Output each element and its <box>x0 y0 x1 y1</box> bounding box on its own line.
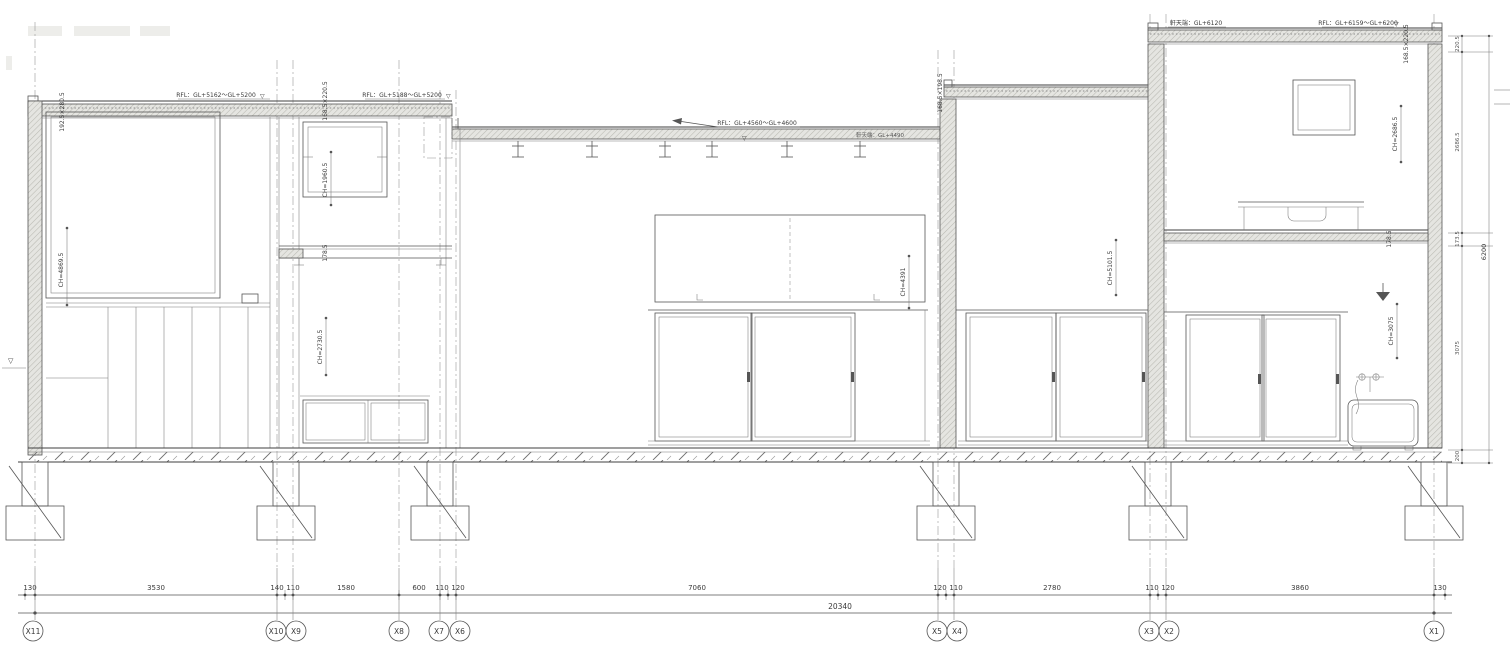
vdim-total-label: 6200 <box>1480 244 1488 261</box>
dim-label: 3860 <box>1291 584 1309 592</box>
bath-faucet-icon <box>1355 374 1384 414</box>
slope-arrow-icon <box>672 118 718 127</box>
grid-bubble-label: X9 <box>291 627 301 636</box>
grid-bubbles: X11 X10 X9 X8 X7 X6 X5 X4 X3 X2 X1 <box>23 568 1444 641</box>
grid-bubble-label: X3 <box>1144 627 1154 636</box>
dim-label: 3530 <box>147 584 165 592</box>
roof-beam-size: 192.5×280.5 <box>59 92 66 132</box>
grid-bubble-label: X10 <box>269 627 284 636</box>
window-b <box>303 122 387 197</box>
beam-size: 178.5 <box>322 244 329 261</box>
level-triangle-icon: ▽ <box>8 357 14 365</box>
low-cabinet <box>300 396 430 443</box>
level-triangle-icon: ▽ <box>446 93 451 100</box>
grid-bubble-label: X2 <box>1164 627 1174 636</box>
vdim-label: 2686.5 <box>1455 132 1461 152</box>
vdim-label: 173.5 <box>1455 231 1461 247</box>
ch-label: CH=2686.5 <box>1392 116 1399 151</box>
ch-label: CH=4869.5 <box>58 252 65 287</box>
ch-label: CH=2730.5 <box>317 329 324 364</box>
sink-basin <box>1288 207 1326 221</box>
dim-label: 120 <box>1161 584 1174 592</box>
room-e <box>1164 80 1418 450</box>
level-triangle-icon: ▽ <box>1394 21 1399 28</box>
sliding-door-d <box>966 313 1146 441</box>
footing <box>1129 462 1187 540</box>
roof-mid-right <box>944 80 1156 99</box>
total-dim-label: 20340 <box>828 602 852 611</box>
door-handle <box>1142 372 1145 382</box>
room-b <box>279 117 452 443</box>
wall-x5x4 <box>940 99 956 448</box>
dim-label: 120 <box>933 584 946 592</box>
ch-label: CH=4391 <box>900 267 907 296</box>
grid-bubble-label: X7 <box>434 627 444 636</box>
vdim-label: 200 <box>1455 450 1461 461</box>
door-handle <box>1052 372 1055 382</box>
footing <box>917 462 975 540</box>
grid-bubble-label: X8 <box>394 627 404 636</box>
door-handle <box>747 372 750 382</box>
door-handle <box>1336 374 1339 384</box>
rfl-label-canopy: RFL：GL+4560～GL+4600 <box>717 120 797 127</box>
dim-label: 600 <box>412 584 425 592</box>
mid-beam <box>279 246 452 265</box>
door-handle <box>1258 374 1261 384</box>
faint-title-marks <box>6 26 170 70</box>
vdim-label: 3075 <box>1455 341 1461 355</box>
vdim-label: 220.5 <box>1455 36 1461 52</box>
footing <box>257 462 315 540</box>
sliding-door-e <box>1186 315 1340 441</box>
building-section-svg: RFL：GL+5162～GL+5200 ▽ RFL：GL+5188～GL+520… <box>0 0 1512 650</box>
roof-left <box>28 96 452 118</box>
vanity-counter <box>1238 202 1364 230</box>
room-a <box>46 112 270 448</box>
level-triangle-icon: ▽ <box>742 135 747 142</box>
wall-x3x2 <box>1148 44 1164 448</box>
small-fixture <box>242 294 258 303</box>
member-size-labels: 192.5×280.5 168.5×220.5 168.5×198.5 168.… <box>59 24 1410 261</box>
wall-right <box>1428 44 1442 448</box>
level-labels: RFL：GL+5162～GL+5200 ▽ RFL：GL+5188～GL+520… <box>2 19 1399 368</box>
grid-bubble-label: X5 <box>932 627 942 636</box>
canopy-steel-posts <box>512 141 866 157</box>
closet-unit <box>46 117 270 448</box>
rfl-label-left2: RFL：GL+5188～GL+5200 <box>362 92 442 99</box>
dim-label: 120 <box>451 584 464 592</box>
ch-label: CH=1960.5 <box>322 162 329 197</box>
floor-slab <box>18 448 1452 462</box>
roof-beam-size: 168.5×220.5 <box>322 81 329 121</box>
dim-label: 110 <box>435 584 448 592</box>
foundations <box>6 462 1463 540</box>
eave-label-canopy: 軒天端：GL+4490 <box>856 131 904 139</box>
beam-size: 178.5 <box>1386 230 1393 247</box>
large-opening-frame <box>46 112 220 298</box>
bubble-connectors <box>35 568 1434 620</box>
dim-label: 130 <box>23 584 36 592</box>
rfl-label-right: RFL：GL+6159～GL+6200 <box>1318 20 1398 27</box>
section-drawing-sheet: RFL：GL+5162～GL+5200 ▽ RFL：GL+5188～GL+520… <box>0 0 1512 650</box>
bottom-dimension-lines: 130 3530 140 110 1580 600 110 120 7060 1… <box>18 584 1452 615</box>
roof-beam-size: 168.5×220.5 <box>1403 24 1410 64</box>
grid-bubble-label: X4 <box>952 627 962 636</box>
grid-bubble-label: X1 <box>1429 627 1439 636</box>
ch-label: CH=3075 <box>1388 316 1395 345</box>
room-d <box>956 310 1148 445</box>
dim-label: 1580 <box>337 584 355 592</box>
right-dimension-column: 220.5 2686.5 173.5 3075 200 6200 <box>1448 35 1510 464</box>
grid-bubble-label: X11 <box>26 627 41 636</box>
door-handle <box>851 372 854 382</box>
dim-label: 130 <box>1433 584 1446 592</box>
dim-label: 7060 <box>688 584 706 592</box>
dim-label: 110 <box>949 584 962 592</box>
window-e <box>1293 80 1355 135</box>
dim-label: 110 <box>1145 584 1158 592</box>
sliding-door-c <box>655 313 855 441</box>
room-c <box>648 215 930 445</box>
rfl-label-left: RFL：GL+5162～GL+5200 <box>176 92 256 99</box>
roof-beam-size: 168.5×198.5 <box>937 73 944 113</box>
ch-label: CH=5101.5 <box>1107 250 1114 285</box>
shower-head-icon <box>1376 283 1390 301</box>
dim-label: 2780 <box>1043 584 1061 592</box>
wall-left <box>28 101 42 455</box>
dashed-duct-box <box>424 117 452 158</box>
eave-label-right: 軒天端：GL+6120 <box>1170 19 1222 27</box>
grid-bubble-label: X6 <box>455 627 465 636</box>
